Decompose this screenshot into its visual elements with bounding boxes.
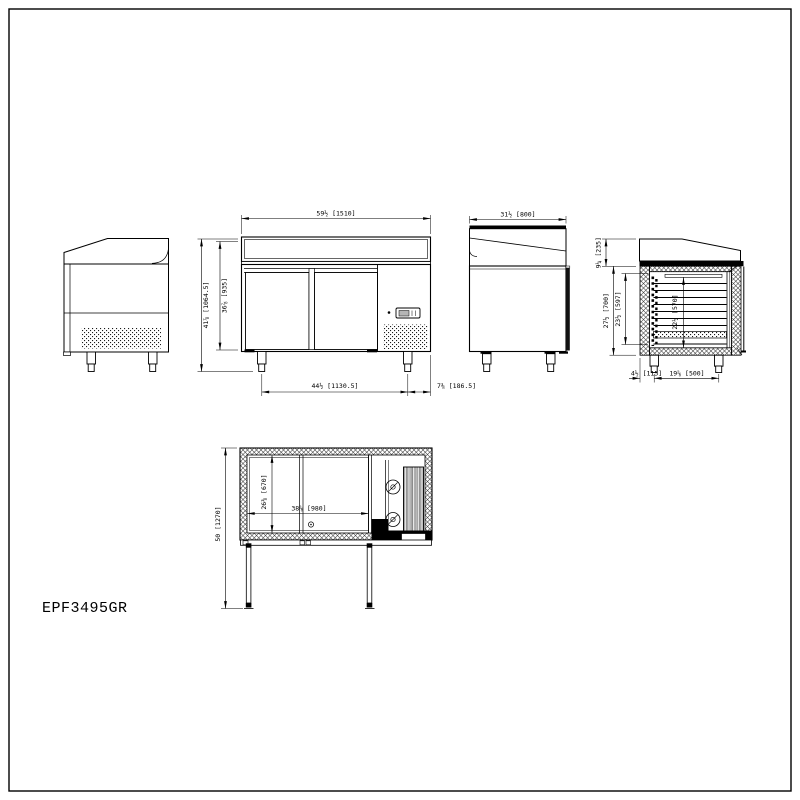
legs-front xyxy=(258,352,413,372)
view-side-right xyxy=(470,226,570,372)
vent-grille-side xyxy=(81,328,161,349)
prep-rail xyxy=(242,237,431,262)
dim-interior-height: 23½ [597] xyxy=(614,291,622,326)
dim-leg-to-edge: 7⅜ [186.5] xyxy=(437,381,476,390)
view-cross-section xyxy=(640,239,747,373)
legs-side-left xyxy=(87,352,157,372)
door-mullion xyxy=(309,269,315,350)
legs-side-right xyxy=(483,354,556,372)
dim-section-body-height: 27½ [700] xyxy=(602,293,610,328)
spec-drawing: 59½ [1510] 31½ [800] 41⅞ [1064.5] 36⅞ [9… xyxy=(0,0,800,800)
vent-grille-front xyxy=(383,325,428,350)
dim-side-depth: 31½ [800] xyxy=(500,211,535,219)
dim-interior-depth: 22½ [570] xyxy=(671,294,679,329)
dim-leg-spacing: 19⅝ [500] xyxy=(669,370,704,378)
dim-plan-depth: 50 [1270] xyxy=(214,506,222,541)
dim-plan-interior-depth: 26⅜ [670] xyxy=(259,474,268,509)
dim-overall-height: 41⅞ [1064.5] xyxy=(202,282,210,329)
view-side-left xyxy=(64,239,169,372)
view-front xyxy=(242,237,431,372)
insulated-wall-right xyxy=(732,266,742,355)
dim-leg-inset: 4½ [115] xyxy=(631,370,662,378)
cutting-board xyxy=(640,261,744,266)
dim-body-height: 36⅞ [935] xyxy=(221,278,229,313)
dim-plan-interior-width: 38⅝ [980] xyxy=(291,505,326,513)
condenser-coil xyxy=(404,467,424,533)
page-border xyxy=(9,9,791,791)
door-edge-strip xyxy=(566,268,570,351)
model-number: EPF3495GR xyxy=(42,600,128,617)
view-plan xyxy=(240,448,432,609)
right-door xyxy=(315,273,378,350)
open-door-left xyxy=(244,543,254,608)
left-door xyxy=(246,273,310,350)
insulated-wall-left xyxy=(640,266,650,355)
dim-front-width: 59½ [1510] xyxy=(316,210,355,218)
dim-leg-span: 44½ [1130.5] xyxy=(312,382,359,390)
open-door-right xyxy=(365,543,375,608)
dim-hood-height: 9¼ [235] xyxy=(595,237,603,268)
